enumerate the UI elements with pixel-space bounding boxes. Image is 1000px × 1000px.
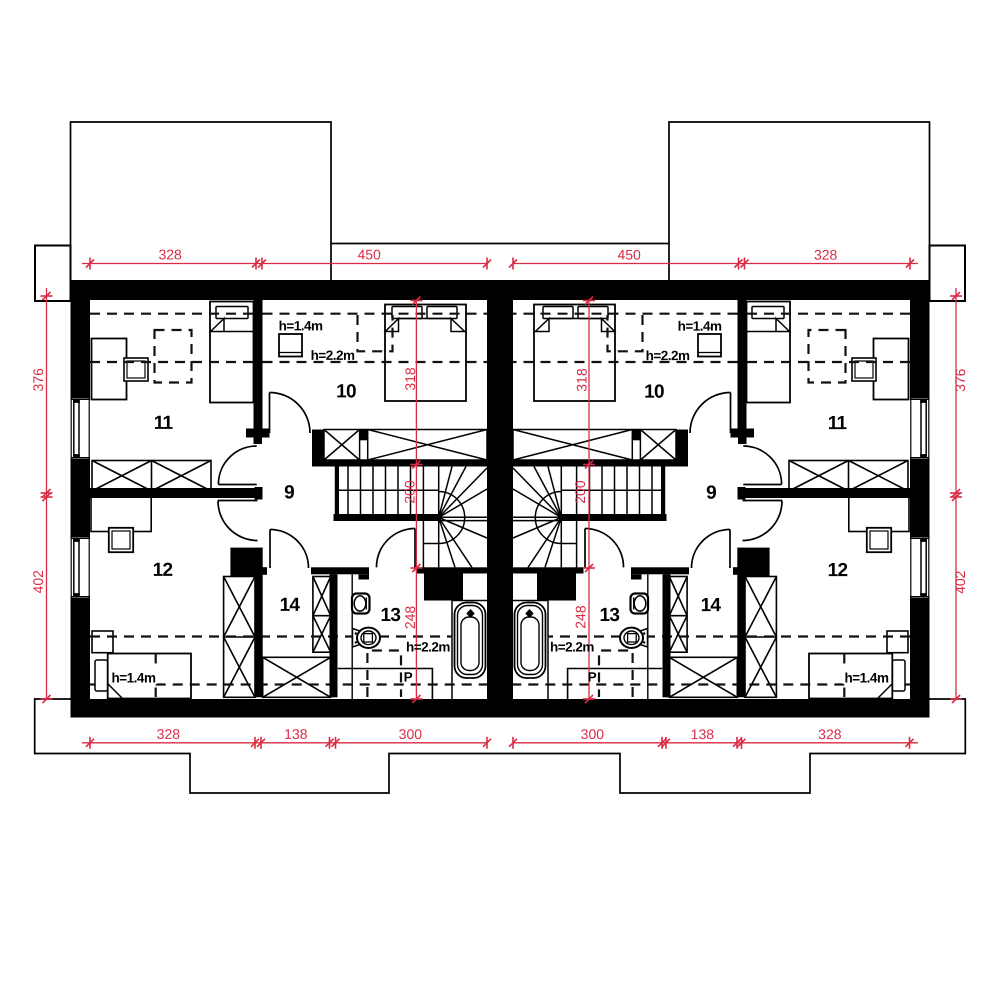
svg-text:9: 9 xyxy=(706,483,716,504)
svg-text:14: 14 xyxy=(701,595,722,616)
svg-text:13: 13 xyxy=(600,605,620,626)
svg-text:300: 300 xyxy=(399,726,423,742)
svg-text:h=1.4m: h=1.4m xyxy=(845,671,889,686)
svg-text:h=2.2m: h=2.2m xyxy=(550,640,594,655)
svg-text:248: 248 xyxy=(402,606,418,630)
svg-text:138: 138 xyxy=(691,726,715,742)
svg-text:h=2.2m: h=2.2m xyxy=(646,348,690,363)
svg-text:13: 13 xyxy=(381,605,401,626)
svg-text:450: 450 xyxy=(357,246,381,262)
svg-text:138: 138 xyxy=(284,726,308,742)
svg-text:12: 12 xyxy=(828,560,848,581)
svg-text:P: P xyxy=(588,670,597,685)
svg-text:h=1.4m: h=1.4m xyxy=(678,319,722,334)
svg-text:328: 328 xyxy=(158,246,182,262)
svg-text:h=2.2m: h=2.2m xyxy=(406,639,450,654)
svg-text:328: 328 xyxy=(818,726,842,742)
svg-text:9: 9 xyxy=(284,482,294,503)
svg-text:P: P xyxy=(404,669,413,684)
svg-text:376: 376 xyxy=(30,368,46,392)
svg-text:200: 200 xyxy=(572,480,588,504)
svg-text:h=2.2m: h=2.2m xyxy=(311,348,355,363)
svg-text:318: 318 xyxy=(574,368,590,392)
svg-text:12: 12 xyxy=(153,560,173,581)
svg-text:h=1.4m: h=1.4m xyxy=(279,318,323,333)
svg-text:14: 14 xyxy=(280,595,301,616)
svg-text:376: 376 xyxy=(952,368,968,392)
svg-text:10: 10 xyxy=(336,381,356,402)
svg-text:h=1.4m: h=1.4m xyxy=(112,671,156,686)
svg-text:11: 11 xyxy=(828,413,848,434)
svg-text:450: 450 xyxy=(617,247,641,263)
svg-text:200: 200 xyxy=(401,480,417,504)
svg-text:402: 402 xyxy=(952,570,968,594)
svg-text:300: 300 xyxy=(581,726,605,742)
svg-text:248: 248 xyxy=(572,605,588,629)
svg-text:328: 328 xyxy=(814,247,838,263)
svg-text:318: 318 xyxy=(402,367,418,391)
svg-text:10: 10 xyxy=(644,382,664,403)
svg-text:11: 11 xyxy=(154,413,174,434)
svg-text:402: 402 xyxy=(30,570,46,594)
svg-text:328: 328 xyxy=(157,726,181,742)
